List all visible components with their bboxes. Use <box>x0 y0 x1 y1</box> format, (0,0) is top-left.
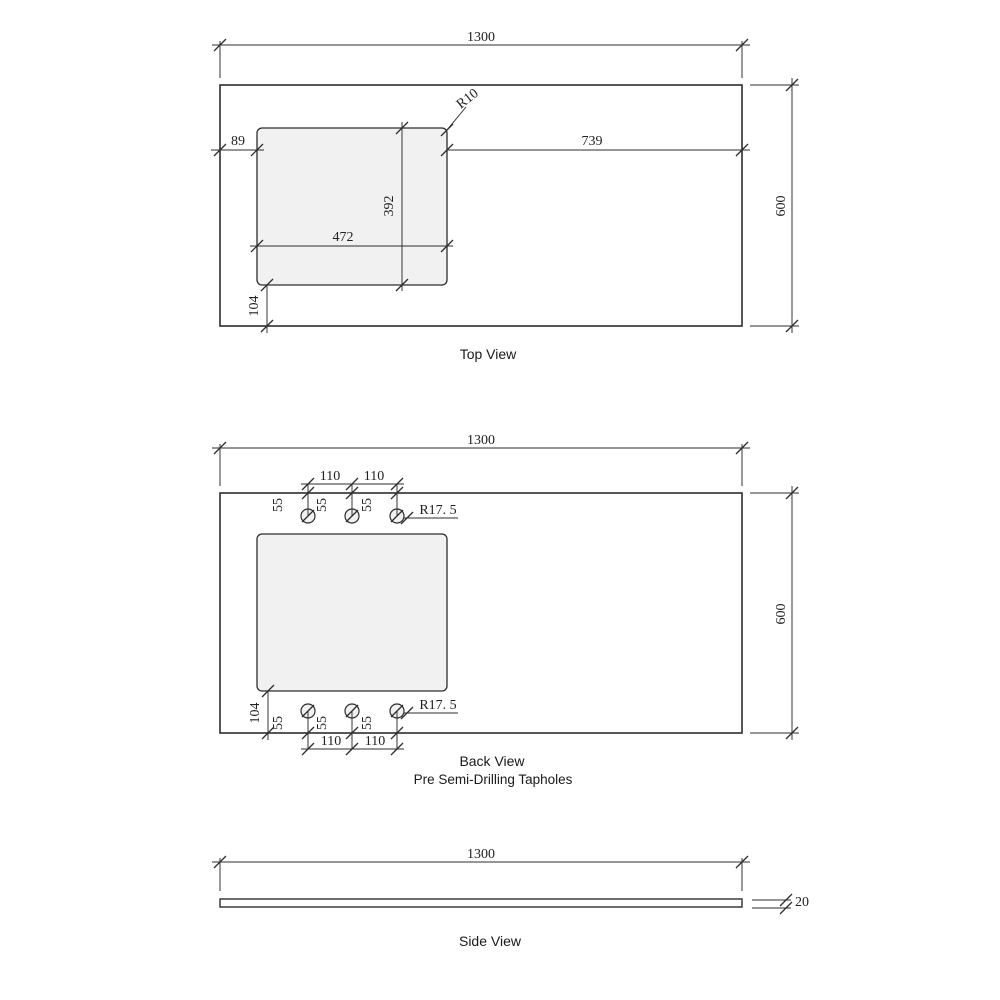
dim-label-height: 600 <box>774 604 789 625</box>
slab-profile <box>220 899 742 907</box>
sink-cutout <box>257 128 447 285</box>
dim-label-pitch-2: 110 <box>364 469 384 484</box>
dim-label-bottom-offset: 104 <box>247 296 262 317</box>
dim-label-right-offset: 739 <box>582 134 603 149</box>
dim-bottom-offset: 104 <box>247 279 273 333</box>
radius-callout-r10: R10 <box>441 86 482 136</box>
dim-label-height: 600 <box>774 196 789 217</box>
dim-overall-height: 600 <box>750 78 799 333</box>
dim-label-corner-radius: R10 <box>454 86 482 112</box>
dim-label-pitch-2: 110 <box>365 734 385 749</box>
dim-thickness: 20 <box>752 894 809 914</box>
side-view-label: Side View <box>459 933 522 949</box>
dim-label-offset-1: 55 <box>271 498 286 512</box>
back-view-label: Back View <box>459 753 525 769</box>
dim-label-thickness: 20 <box>795 895 809 910</box>
dim-label-offset-2: 55 <box>315 716 330 730</box>
dim-label-width: 1300 <box>467 30 495 45</box>
dim-label-pitch-1: 110 <box>320 469 340 484</box>
radius-callout-top: R17. 5 <box>401 503 458 524</box>
dim-label-cutout-width: 472 <box>333 230 354 245</box>
top-view-label: Top View <box>460 346 517 362</box>
dim-label-hole-radius: R17. 5 <box>419 698 456 713</box>
technical-drawing: 1300 89 739 392 472 104 <box>0 0 1000 1000</box>
dim-overall-width: 1300 <box>212 433 750 486</box>
dim-label-width: 1300 <box>467 847 495 862</box>
dim-lines <box>212 444 750 486</box>
drawing-page: 1300 89 739 392 472 104 <box>0 0 1000 1000</box>
top-view: 1300 89 739 392 472 104 <box>211 30 799 362</box>
dim-label-offset-3: 55 <box>360 716 375 730</box>
sink-cutout <box>257 534 447 691</box>
dim-right-offset: 739 <box>441 134 750 156</box>
dim-label-cutout-height: 392 <box>382 196 397 217</box>
dim-bottom-hole-pitch: 110 110 <box>301 734 404 755</box>
dim-label-pitch-1: 110 <box>321 734 341 749</box>
dim-label-width: 1300 <box>467 433 495 448</box>
dim-label-offset-2: 55 <box>315 498 330 512</box>
dim-overall-height: 600 <box>750 486 799 740</box>
dim-label-left-offset: 89 <box>231 134 245 149</box>
dim-overall-width: 1300 <box>212 30 750 78</box>
back-view: 1300 600 110 110 55 55 55 R17. 5 5 <box>212 433 799 787</box>
dim-overall-width: 1300 <box>212 847 750 891</box>
dim-label-offset-3: 55 <box>360 498 375 512</box>
tick-marks <box>780 894 792 914</box>
side-view: 1300 20 Side View <box>212 847 809 949</box>
dim-lines <box>212 41 750 78</box>
dim-left-offset: 89 <box>211 134 264 156</box>
back-view-sublabel: Pre Semi-Drilling Tapholes <box>414 772 573 787</box>
dim-lines <box>212 858 750 891</box>
radius-callout-bottom: R17. 5 <box>401 698 458 719</box>
dim-label-bottom-offset: 104 <box>248 703 263 724</box>
dim-label-hole-radius: R17. 5 <box>419 503 456 518</box>
dim-bottom-offset: 104 <box>248 685 274 740</box>
